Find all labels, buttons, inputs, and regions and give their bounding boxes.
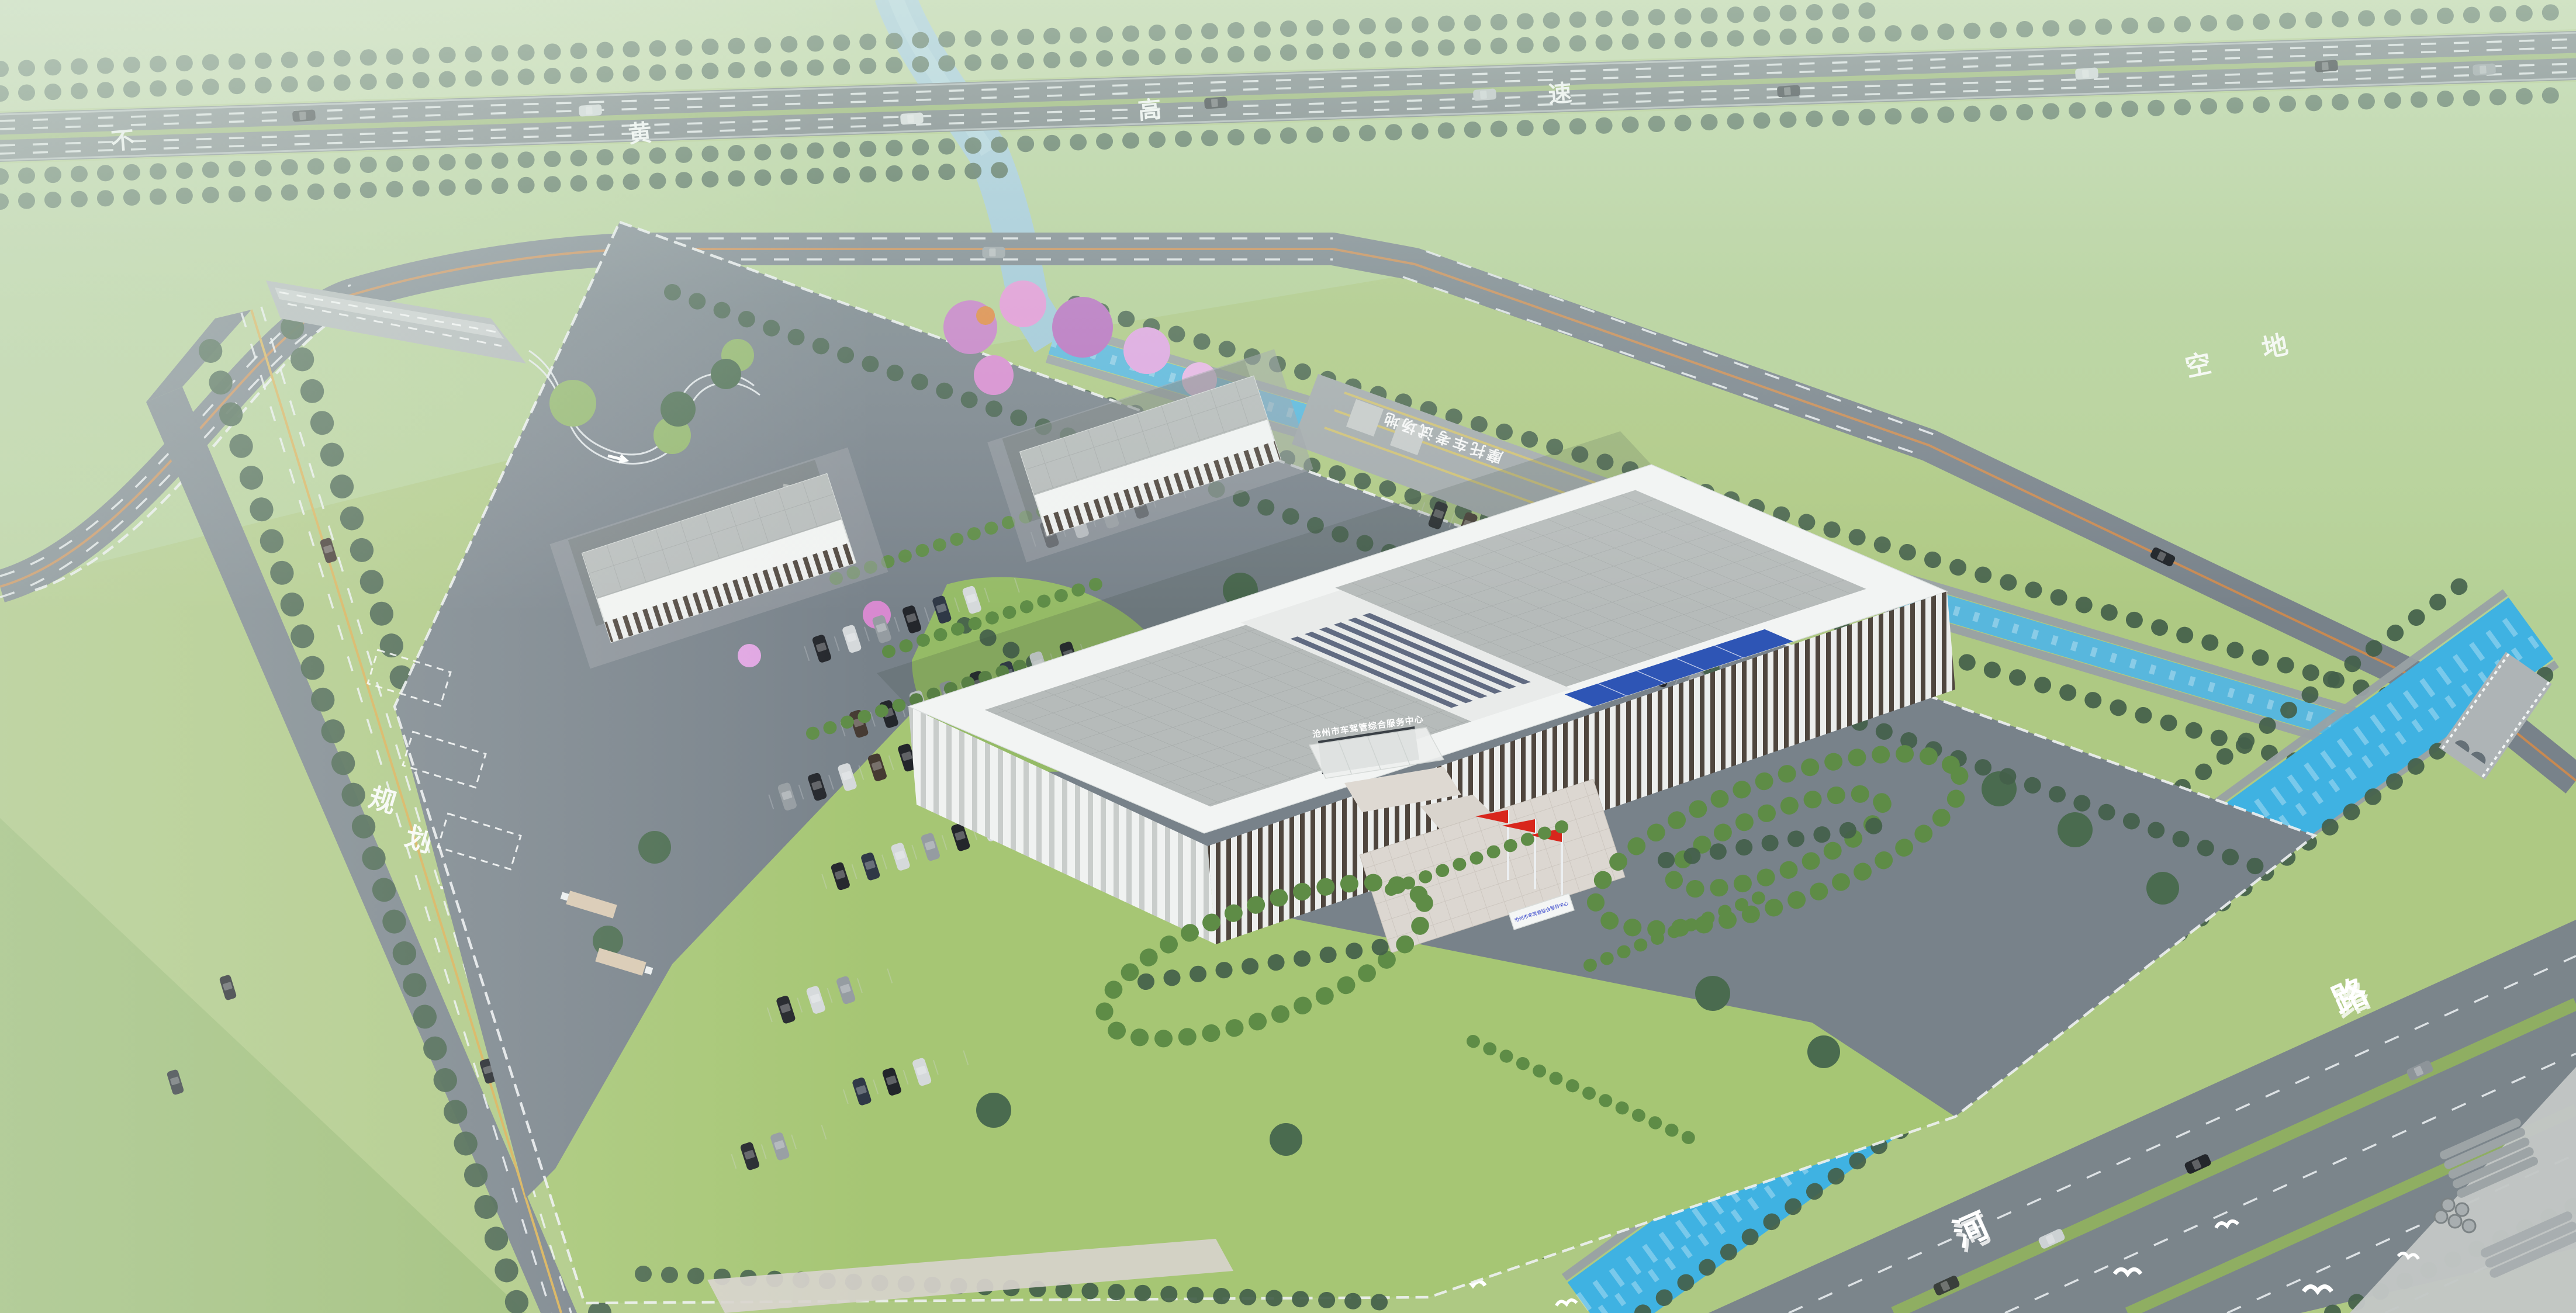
aerial-rendering: 不 黄 高 速 空 地	[0, 0, 2576, 1313]
atmospheric-haze-left	[0, 0, 877, 1313]
